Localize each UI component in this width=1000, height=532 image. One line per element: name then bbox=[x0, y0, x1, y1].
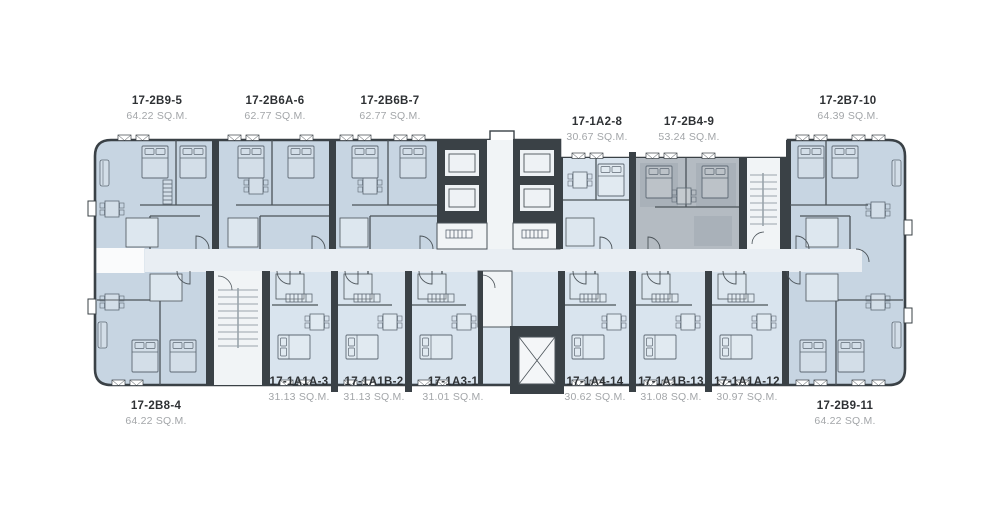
elevator-cab bbox=[520, 185, 554, 211]
elevator-core bbox=[437, 139, 560, 249]
unit-area: 62.77 SQ.M. bbox=[244, 110, 305, 122]
unit-name: 17-2B8-4 bbox=[125, 400, 186, 412]
unit-area: 64.22 SQ.M. bbox=[814, 415, 875, 427]
unit-name: 17-1A1A-3 bbox=[268, 376, 329, 388]
unit-name: 17-1A3-1 bbox=[422, 376, 483, 388]
unit-area: 53.24 SQ.M. bbox=[658, 131, 719, 143]
unit-name: 17-2B9-11 bbox=[814, 400, 875, 412]
unit-area: 64.22 SQ.M. bbox=[125, 415, 186, 427]
corridor bbox=[145, 249, 862, 272]
elevator-cab bbox=[445, 185, 479, 211]
unit-name: 17-1A2-8 bbox=[566, 116, 627, 128]
unit-area: 64.22 SQ.M. bbox=[126, 110, 187, 122]
unit-region-17-2b4-9[interactable] bbox=[636, 160, 737, 247]
unit-label-17-1a1a-3[interactable]: 17-1A1A-3 31.13 SQ.M. bbox=[268, 376, 329, 403]
unit-name: 17-1A1B-2 bbox=[343, 376, 404, 388]
balcony-ledge-left-top bbox=[88, 201, 96, 216]
unit-region-17-1a1b-13[interactable] bbox=[638, 273, 703, 383]
unit-label-17-1a1b-2[interactable]: 17-1A1B-2 31.13 SQ.M. bbox=[343, 376, 404, 403]
unit-area: 64.39 SQ.M. bbox=[817, 110, 878, 122]
unit-region-17-1a1a-3[interactable] bbox=[272, 273, 329, 383]
unit-name: 17-2B7-10 bbox=[817, 95, 878, 107]
unit-area: 31.01 SQ.M. bbox=[422, 391, 483, 403]
unit-area: 31.13 SQ.M. bbox=[268, 391, 329, 403]
balcony-ledge-right-top bbox=[904, 220, 912, 235]
unit-label-17-1a1b-13[interactable]: 17-1A1B-13 31.08 SQ.M. bbox=[638, 376, 704, 403]
unit-label-17-1a1a-12[interactable]: 17-1A1A-12 30.97 SQ.M. bbox=[714, 376, 780, 403]
unit-region-17-2b9-5[interactable] bbox=[97, 142, 210, 247]
unit-area: 30.67 SQ.M. bbox=[566, 131, 627, 143]
roof-vent-stub bbox=[490, 131, 514, 141]
elevator-cab bbox=[445, 150, 479, 176]
unit-region-17-2b9-11[interactable] bbox=[789, 273, 903, 383]
unit-name: 17-2B4-9 bbox=[658, 116, 719, 128]
unit-label-17-2b9-11[interactable]: 17-2B9-11 64.22 SQ.M. bbox=[814, 400, 875, 427]
floorplan-svg bbox=[0, 0, 1000, 532]
unit-name: 17-1A4-14 bbox=[564, 376, 625, 388]
unit-area: 31.13 SQ.M. bbox=[343, 391, 404, 403]
unit-area: 62.77 SQ.M. bbox=[359, 110, 420, 122]
unit-region-17-1a4-14[interactable] bbox=[567, 273, 627, 383]
unit-region-17-1a2-8[interactable] bbox=[563, 160, 627, 247]
unit-label-17-2b6a-6[interactable]: 17-2B6A-6 62.77 SQ.M. bbox=[244, 95, 305, 122]
unit-label-17-2b7-10[interactable]: 17-2B7-10 64.39 SQ.M. bbox=[817, 95, 878, 122]
elevator-cab bbox=[520, 150, 554, 176]
balcony-ledge-right-bottom bbox=[904, 308, 912, 323]
stairwell-right bbox=[739, 158, 788, 249]
unit-name: 17-2B9-5 bbox=[126, 95, 187, 107]
unit-label-17-2b9-5[interactable]: 17-2B9-5 64.22 SQ.M. bbox=[126, 95, 187, 122]
unit-label-17-2b8-4[interactable]: 17-2B8-4 64.22 SQ.M. bbox=[125, 400, 186, 427]
unit-label-17-2b4-9[interactable]: 17-2B4-9 53.24 SQ.M. bbox=[658, 116, 719, 143]
unit-region-17-1a1b-2[interactable] bbox=[340, 273, 403, 383]
unit-area: 30.97 SQ.M. bbox=[714, 391, 780, 403]
unit-region-17-1a1a-12[interactable] bbox=[714, 273, 780, 383]
unit-region-17-2b7-10[interactable] bbox=[789, 142, 903, 247]
unit-region-17-2b6b-7[interactable] bbox=[336, 142, 435, 247]
stairwell-left bbox=[206, 271, 270, 385]
unit-name: 17-2B6B-7 bbox=[359, 95, 420, 107]
unit-name: 17-1A1A-12 bbox=[714, 376, 780, 388]
unit-region-17-1a3-1[interactable] bbox=[414, 273, 478, 383]
unit-label-17-1a4-14[interactable]: 17-1A4-14 30.62 SQ.M. bbox=[564, 376, 625, 403]
unit-label-17-1a2-8[interactable]: 17-1A2-8 30.67 SQ.M. bbox=[566, 116, 627, 143]
balcony-ledge-left-bottom bbox=[88, 299, 96, 314]
corridor-left-gap bbox=[97, 248, 145, 273]
unit-label-17-1a3-1[interactable]: 17-1A3-1 31.01 SQ.M. bbox=[422, 376, 483, 403]
unit-area: 30.62 SQ.M. bbox=[564, 391, 625, 403]
elevator-lobby bbox=[487, 140, 513, 249]
unit-name: 17-2B6A-6 bbox=[244, 95, 305, 107]
unit-name: 17-1A1B-13 bbox=[638, 376, 704, 388]
unit-region-17-2b6a-6[interactable] bbox=[219, 142, 327, 247]
unit-area: 31.08 SQ.M. bbox=[638, 391, 704, 403]
unit-label-17-2b6b-7[interactable]: 17-2B6B-7 62.77 SQ.M. bbox=[359, 95, 420, 122]
unit-region-17-2b8-4[interactable] bbox=[97, 273, 204, 383]
floorplan-page: 17-2B9-5 64.22 SQ.M. 17-2B6A-6 62.77 SQ.… bbox=[0, 0, 1000, 532]
